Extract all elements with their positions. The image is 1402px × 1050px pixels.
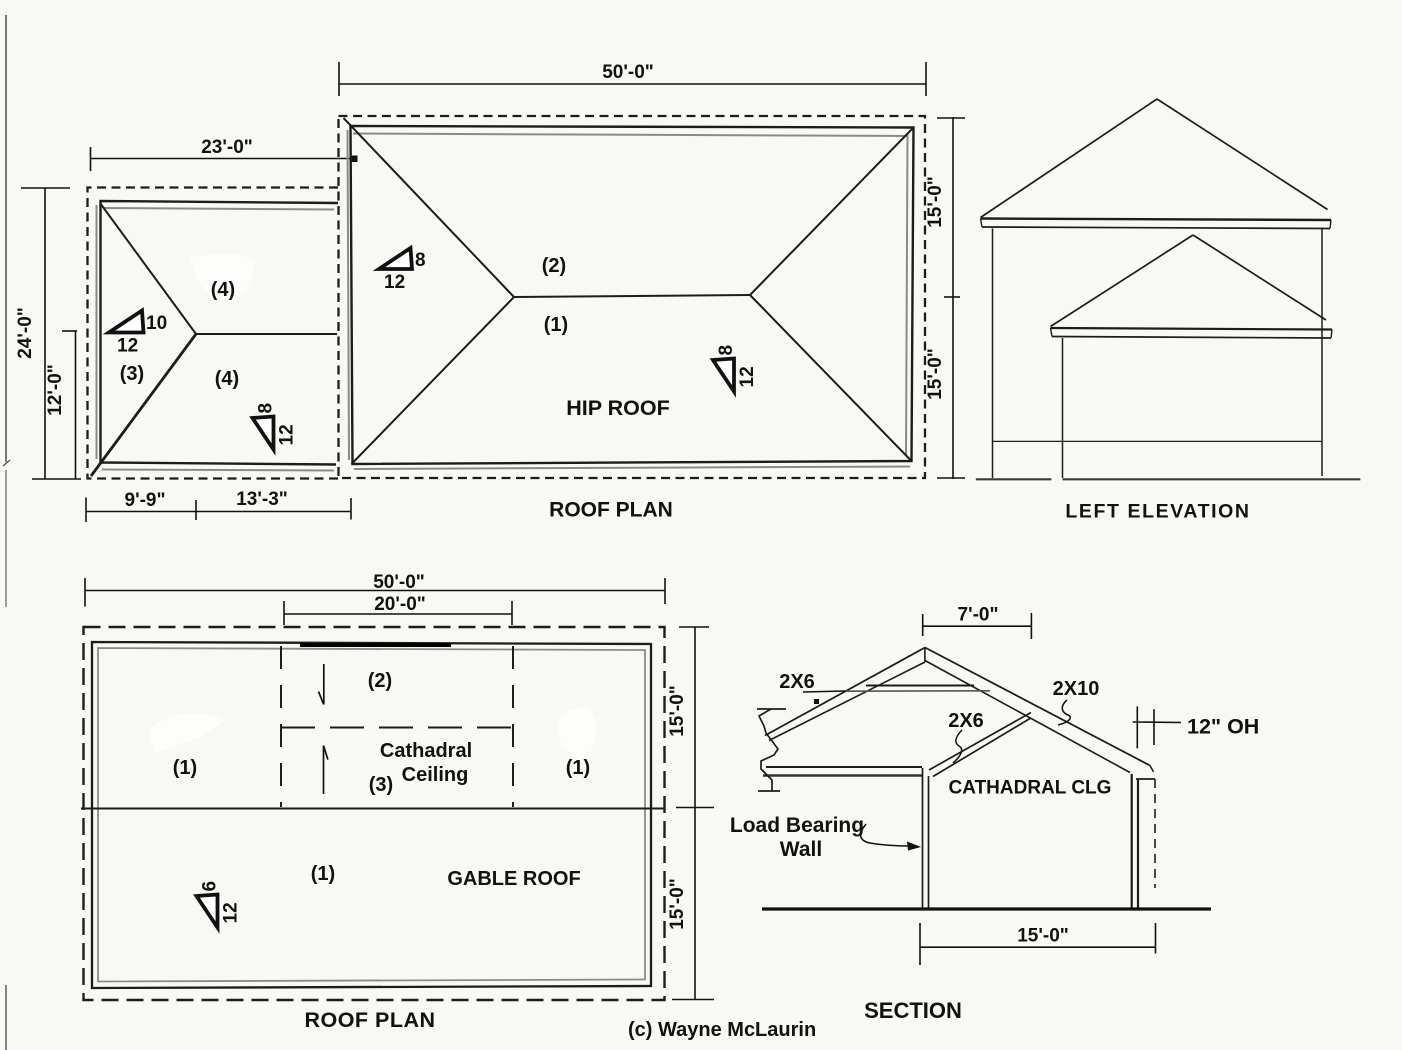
svg-text:8: 8 bbox=[256, 403, 277, 414]
svg-text:GABLE ROOF: GABLE ROOF bbox=[447, 868, 580, 890]
svg-text:(1): (1) bbox=[544, 314, 568, 336]
svg-text:10: 10 bbox=[146, 313, 167, 334]
svg-text:CATHADRAL CLG: CATHADRAL CLG bbox=[949, 778, 1112, 799]
svg-text:(2): (2) bbox=[542, 255, 566, 277]
svg-text:SECTION: SECTION bbox=[864, 998, 962, 1023]
svg-text:Cathadral: Cathadral bbox=[380, 740, 472, 762]
svg-text:12: 12 bbox=[737, 366, 758, 387]
svg-text:13'-3": 13'-3" bbox=[236, 489, 288, 510]
svg-text:HIP ROOF: HIP ROOF bbox=[566, 396, 670, 420]
svg-text:8: 8 bbox=[415, 250, 426, 271]
svg-text:15'-0": 15'-0" bbox=[925, 176, 946, 228]
svg-text:50'-0": 50'-0" bbox=[373, 572, 425, 593]
svg-text:12: 12 bbox=[117, 336, 138, 357]
svg-text:23'-0": 23'-0" bbox=[201, 137, 253, 158]
svg-text:LEFT ELEVATION: LEFT ELEVATION bbox=[1065, 501, 1250, 523]
svg-text:12: 12 bbox=[277, 424, 298, 445]
svg-text:(1): (1) bbox=[173, 757, 197, 779]
svg-text:2X6: 2X6 bbox=[948, 710, 984, 732]
svg-text:15'-0": 15'-0" bbox=[925, 348, 946, 400]
svg-text:(1): (1) bbox=[566, 757, 590, 779]
svg-text:(4): (4) bbox=[211, 279, 235, 301]
svg-text:(3): (3) bbox=[120, 363, 144, 385]
svg-text:20'-0": 20'-0" bbox=[374, 594, 426, 615]
svg-text:Ceiling: Ceiling bbox=[402, 764, 469, 786]
svg-text:Load Bearing: Load Bearing bbox=[730, 814, 864, 837]
svg-text:12" OH: 12" OH bbox=[1187, 715, 1259, 739]
svg-text:15'-0": 15'-0" bbox=[667, 685, 688, 737]
svg-text:15'-0": 15'-0" bbox=[1017, 926, 1069, 947]
svg-text:2X10: 2X10 bbox=[1053, 678, 1100, 700]
svg-text:8: 8 bbox=[716, 345, 737, 356]
svg-text:50'-0": 50'-0" bbox=[602, 62, 654, 83]
svg-text:(c) Wayne McLaurin: (c) Wayne McLaurin bbox=[628, 1019, 816, 1041]
svg-text:(1): (1) bbox=[311, 863, 335, 885]
svg-text:12: 12 bbox=[221, 902, 242, 923]
svg-text:12: 12 bbox=[384, 272, 405, 293]
svg-text:7'-0": 7'-0" bbox=[958, 605, 999, 626]
svg-text:15'-0": 15'-0" bbox=[667, 878, 688, 930]
svg-text:ROOF PLAN: ROOF PLAN bbox=[304, 1008, 435, 1032]
svg-text:9'-9": 9'-9" bbox=[125, 490, 166, 511]
svg-text:(3): (3) bbox=[369, 774, 393, 796]
svg-text:Wall: Wall bbox=[780, 838, 822, 861]
svg-text:(4): (4) bbox=[215, 368, 239, 390]
svg-text:24'-0": 24'-0" bbox=[15, 307, 36, 359]
svg-text:2X6: 2X6 bbox=[779, 671, 815, 693]
svg-text:12'-0": 12'-0" bbox=[45, 364, 66, 416]
svg-text:ROOF PLAN: ROOF PLAN bbox=[549, 499, 673, 522]
svg-text:(2): (2) bbox=[368, 670, 392, 692]
svg-text:6: 6 bbox=[200, 881, 221, 892]
